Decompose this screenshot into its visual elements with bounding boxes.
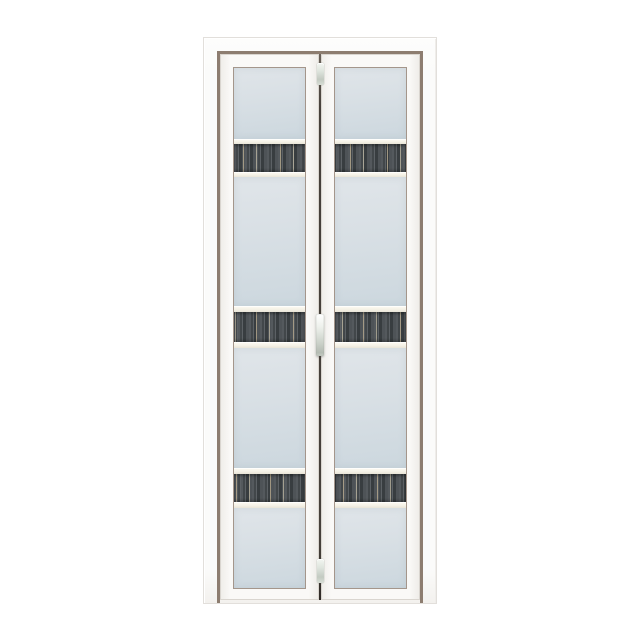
woodgrain-accent-strip <box>335 312 406 342</box>
frosted-glass-pane <box>234 177 305 306</box>
frosted-glass-pane <box>234 348 305 468</box>
glazing-right <box>334 67 407 589</box>
woodgrain-accent-strip <box>335 474 406 502</box>
woodgrain-accent-strip <box>234 474 305 502</box>
woodgrain-accent-strip <box>234 144 305 172</box>
frosted-glass-pane <box>335 177 406 306</box>
woodgrain-accent-strip <box>234 312 305 342</box>
frosted-glass-pane <box>234 508 305 588</box>
frosted-glass-pane <box>234 68 305 139</box>
frosted-glass-pane <box>335 508 406 588</box>
door-panel-right <box>321 54 420 600</box>
door-handle <box>316 314 324 356</box>
top-hinge <box>317 63 324 85</box>
woodgrain-accent-strip <box>335 144 406 172</box>
glazing-left <box>233 67 306 589</box>
frosted-glass-pane <box>335 68 406 139</box>
product-photo-background <box>0 0 640 640</box>
bifold-door <box>203 37 437 604</box>
door-panel-left <box>220 54 319 600</box>
frosted-glass-pane <box>335 348 406 468</box>
bottom-hinge <box>317 559 324 583</box>
